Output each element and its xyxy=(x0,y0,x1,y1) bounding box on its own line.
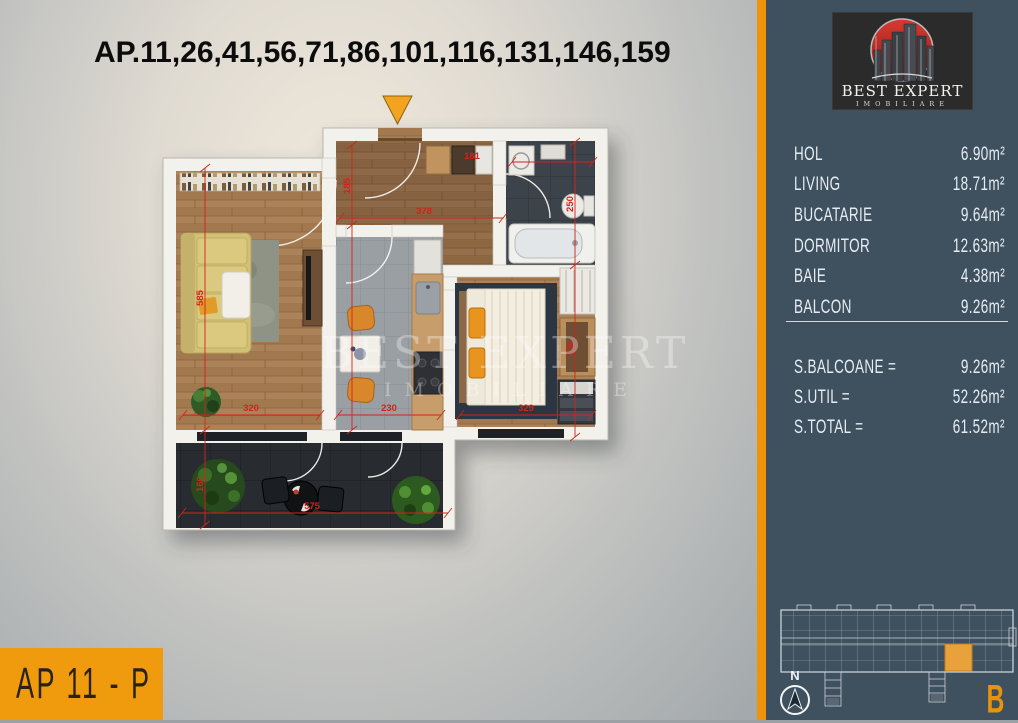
bookshelf xyxy=(180,173,320,191)
floor-plan-area: AP.11,26,41,56,71,86,101,116,131,146,159 xyxy=(0,0,757,720)
tv-unit xyxy=(303,250,322,326)
room-row: LIVING 18.71m² xyxy=(794,170,1005,201)
dim-bedroom-width: 329 xyxy=(518,403,534,414)
room-area: 9.64m² xyxy=(961,204,1005,226)
plant-icon xyxy=(392,476,440,524)
room-row: HOL 6.90m² xyxy=(794,139,1005,170)
dim-living-width: 320 xyxy=(243,403,259,414)
coffee-table xyxy=(222,272,250,318)
entry-marker-icon xyxy=(383,96,412,124)
separator-line xyxy=(786,321,1008,322)
hall-cabinets xyxy=(426,146,492,174)
total-value: 61.52m² xyxy=(953,416,1005,438)
dim-hall-width: 378 xyxy=(416,206,432,217)
room-label: HOL xyxy=(794,143,823,165)
total-value: 9.26m² xyxy=(961,356,1005,378)
room-label: BAIE xyxy=(794,266,826,288)
room-label: BUCATARIE xyxy=(794,204,873,226)
total-label: S.TOTAL = xyxy=(794,416,863,438)
totals-list: S.BALCOANE = 9.26m² S.UTIL = 52.26m² S.T… xyxy=(794,352,1005,442)
apartment-label: AP 11 - P xyxy=(0,648,163,720)
floor-plan-drawing: 585 160 250 384 185 320 230 329 378 181 … xyxy=(0,0,757,720)
room-area: 12.63m² xyxy=(953,235,1005,257)
dim-living-height: 585 xyxy=(195,289,206,306)
room-label: BALCON xyxy=(794,296,852,318)
total-row: S.TOTAL = 61.52m² xyxy=(794,412,1005,442)
total-value: 52.26m² xyxy=(953,386,1005,408)
brand-subtitle: IMOBILIARE xyxy=(832,100,973,108)
brand-name: BEST EXPERT xyxy=(832,82,973,100)
room-area: 4.38m² xyxy=(961,266,1005,288)
room-area: 6.90m² xyxy=(961,143,1005,165)
dim-kitchen-width: 230 xyxy=(381,403,397,414)
info-panel: BEST EXPERT IMOBILIARE HOL 6.90m² LIVING… xyxy=(757,0,1018,720)
dim-bath-width: 181 xyxy=(464,151,481,162)
room-row: BALCON 9.26m² xyxy=(794,292,1005,323)
brand-logo: BEST EXPERT IMOBILIARE xyxy=(832,12,973,110)
flyer: AP.11,26,41,56,71,86,101,116,131,146,159 xyxy=(0,0,1018,720)
compass-icon: N xyxy=(778,668,812,722)
room-label: LIVING xyxy=(794,174,840,196)
chair xyxy=(347,377,375,403)
room-label: DORMITOR xyxy=(794,235,870,257)
total-label: S.UTIL = xyxy=(794,386,850,408)
stool xyxy=(261,476,289,504)
room-row: BAIE 4.38m² xyxy=(794,261,1005,292)
watermark-line2: IMOBILIARE xyxy=(384,379,640,401)
room-area: 9.26m² xyxy=(961,296,1005,318)
dim-balcony-width: 575 xyxy=(304,501,321,512)
fridge xyxy=(414,240,441,274)
room-row: DORMITOR 12.63m² xyxy=(794,231,1005,262)
total-row: S.BALCOANE = 9.26m² xyxy=(794,352,1005,382)
bathtub xyxy=(509,224,595,263)
apartment-label-text: AP 11 - P xyxy=(16,658,151,708)
total-label: S.BALCOANE = xyxy=(794,356,896,378)
brand-logo-icon xyxy=(832,12,973,82)
compass-north-label: N xyxy=(778,668,812,683)
room-area: 18.71m² xyxy=(953,174,1005,196)
stool xyxy=(317,486,344,512)
dim-bath-height: 250 xyxy=(565,196,576,212)
highlighted-unit xyxy=(945,644,972,671)
room-list: HOL 6.90m² LIVING 18.71m² BUCATARIE 9.64… xyxy=(794,139,1005,323)
room-row: BUCATARIE 9.64m² xyxy=(794,200,1005,231)
dim-hall-height: 185 xyxy=(342,177,353,194)
section-letter: B xyxy=(982,682,1004,718)
plant-icon xyxy=(191,387,221,417)
total-row: S.UTIL = 52.26m² xyxy=(794,382,1005,412)
watermark-line1: BEST EXPERT xyxy=(321,328,690,379)
dim-balcony-height: 160 xyxy=(195,476,206,492)
